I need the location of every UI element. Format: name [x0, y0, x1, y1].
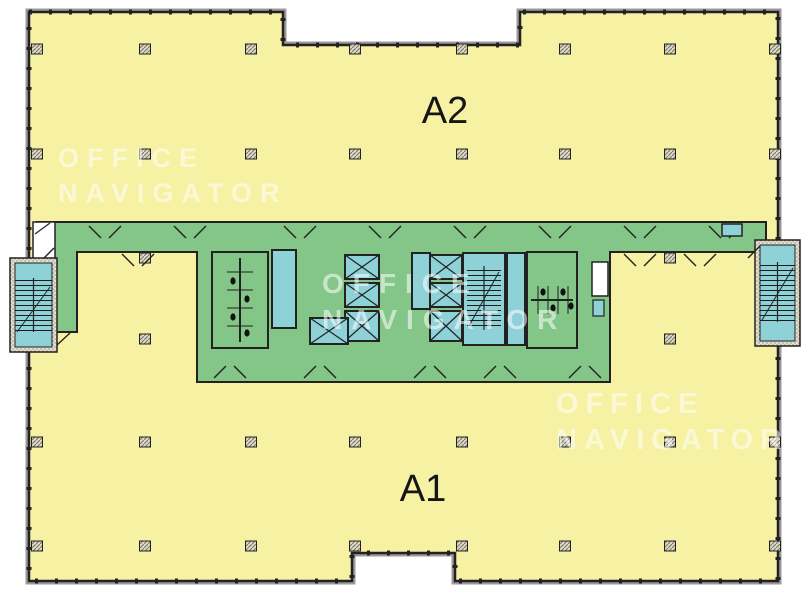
stairwell-right	[755, 240, 800, 346]
toilet-icon	[230, 313, 235, 320]
column-marker	[770, 44, 781, 54]
floor-plan: A2 A1 OFFICE NAVIGATOR OFFICE NAVIGATOR …	[0, 0, 810, 600]
shaft	[507, 253, 525, 345]
toilet-icon	[540, 288, 545, 295]
shaft	[412, 253, 430, 309]
toilet-icon	[568, 302, 573, 309]
elevator-shaft	[430, 255, 462, 279]
elevator-shaft	[430, 311, 462, 341]
shaft	[272, 250, 296, 328]
elevator-shaft	[345, 255, 379, 279]
column-marker	[140, 253, 151, 263]
restroom-left	[212, 252, 268, 348]
column-marker	[770, 437, 781, 447]
zone-a1-label: A1	[363, 468, 483, 511]
entrance-vestibule	[33, 222, 55, 262]
toilet-icon	[230, 277, 235, 284]
column-marker	[665, 334, 676, 344]
stairwell-left	[10, 258, 57, 352]
toilet-icon	[550, 304, 555, 311]
toilet-icon	[560, 288, 565, 295]
stairwell-core	[463, 253, 505, 345]
column-marker	[770, 541, 781, 551]
column-marker	[665, 253, 676, 263]
zone-a1[interactable]: A1	[37, 382, 766, 553]
elevator-shaft	[345, 283, 379, 307]
elevator-shaft	[430, 283, 462, 307]
zone-a2-label: A2	[385, 90, 505, 133]
elevator-shaft	[345, 311, 379, 341]
column-marker	[140, 334, 151, 344]
elevator-shaft	[310, 318, 348, 344]
column-marker	[770, 149, 781, 159]
toilet-icon	[244, 295, 249, 302]
zone-a2[interactable]: A2	[37, 45, 766, 222]
toilet-icon	[244, 329, 249, 336]
restroom-right	[527, 252, 577, 348]
